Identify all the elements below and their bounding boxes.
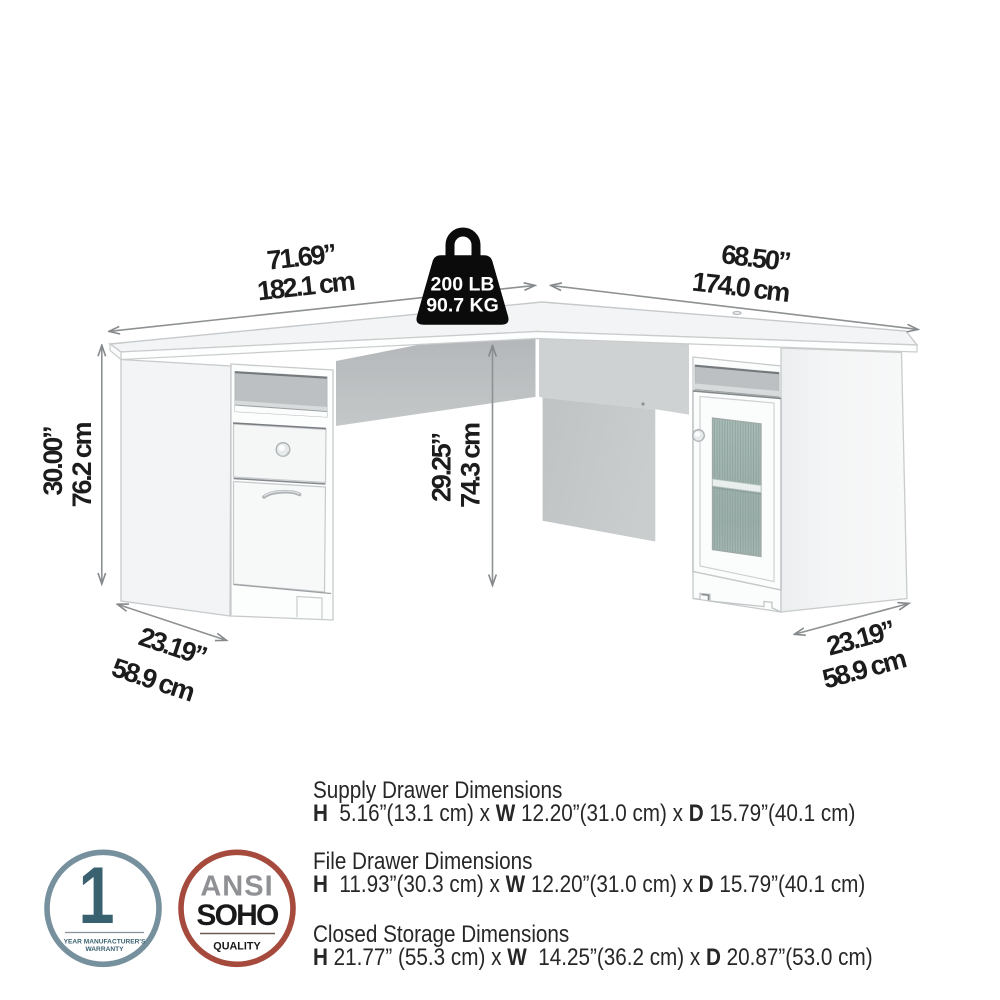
svg-text:76.2 cm: 76.2 cm <box>67 422 97 507</box>
svg-text:QUALITY: QUALITY <box>213 941 261 953</box>
svg-text:H 5.16”(13.1 cm) x W 12.20”(3: H 5.16”(13.1 cm) x W 12.20”(31.0 cm) x D… <box>313 800 855 827</box>
svg-text:90.7 KG: 90.7 KG <box>426 295 499 317</box>
svg-text:SOHO: SOHO <box>196 899 279 932</box>
svg-text:30.00”: 30.00” <box>38 427 68 496</box>
svg-text:H 21.77” (55.3 cm) x W 14.25”: H 21.77” (55.3 cm) x W 14.25”(36.2 cm) x… <box>313 944 873 971</box>
svg-text:29.25”: 29.25” <box>427 433 457 502</box>
svg-text:200 LB: 200 LB <box>431 274 495 296</box>
svg-text:YEAR MANUFACTURER'S: YEAR MANUFACTURER'S <box>64 939 146 946</box>
svg-text:74.3 cm: 74.3 cm <box>456 423 486 508</box>
svg-text:H 11.93”(30.3 cm) x W 12.20”(: H 11.93”(30.3 cm) x W 12.20”(31.0 cm) x … <box>313 871 865 898</box>
svg-text:WARRANTY: WARRANTY <box>85 946 124 953</box>
svg-text:ANSI: ANSI <box>200 871 273 903</box>
svg-text:1: 1 <box>78 850 114 941</box>
